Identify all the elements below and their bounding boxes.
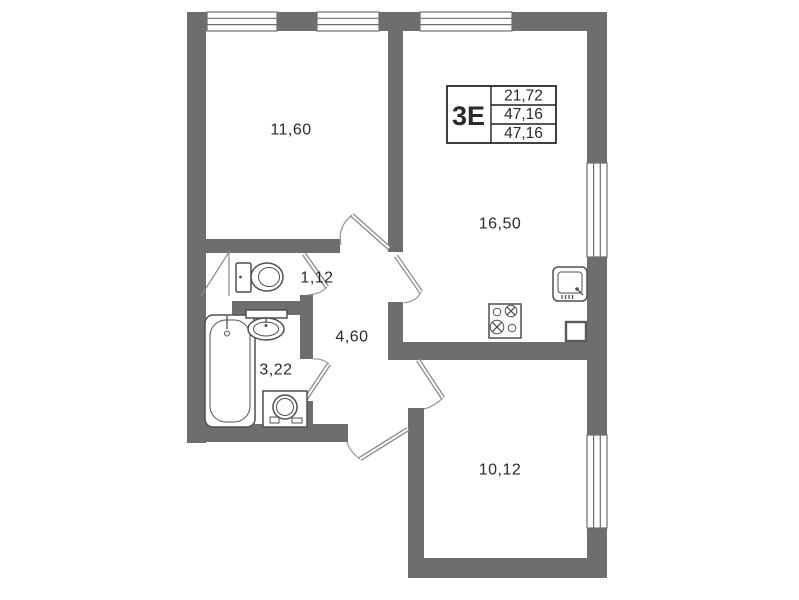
- wall-wc-top: [187, 239, 340, 253]
- kitchen-sink-icon: [553, 267, 587, 301]
- window-top-2: [317, 12, 379, 31]
- bathroom-sink-icon: [246, 310, 287, 340]
- kitchen-living-area-label: 16,50: [479, 216, 522, 233]
- room-a-area-label: 11,60: [270, 122, 311, 139]
- unit-info-stamp: 3Е 21,72 47,16 47,16: [447, 86, 556, 143]
- wc-area-label: 1,12: [300, 270, 333, 287]
- window-right-room-b: [587, 435, 607, 528]
- window-right-kitchen: [587, 163, 607, 257]
- stamp-value-living: 21,72: [504, 88, 543, 105]
- door-room-b: [418, 360, 443, 409]
- room-b-area-label: 10,12: [479, 462, 522, 479]
- floor-plan-canvas: 11,60 16,50 1,12 4,60 3,22 10,12 3Е 21,7…: [0, 0, 799, 600]
- wall-room-b-left: [408, 408, 424, 578]
- wall-left: [187, 12, 206, 443]
- stamp-value-total: 47,16: [504, 106, 543, 123]
- hall-area-label: 4,60: [335, 329, 368, 346]
- toilet-icon: [236, 263, 283, 292]
- unit-type-label: 3Е: [452, 101, 485, 131]
- bathroom-area-label: 3,22: [259, 362, 292, 379]
- wall-bottom-room-b: [408, 558, 607, 578]
- wall-middle-upper: [388, 12, 403, 252]
- stamp-value-total-reduced: 47,16: [504, 125, 543, 142]
- door-kitchen: [396, 256, 421, 303]
- stove-icon: [489, 304, 521, 338]
- vent-niche: [566, 322, 586, 341]
- door-entrance: [347, 429, 408, 459]
- window-top-1: [207, 12, 277, 31]
- washing-machine-icon: [263, 391, 307, 427]
- floor-plan: 11,60 16,50 1,12 4,60 3,22 10,12 3Е 21,7…: [0, 0, 799, 600]
- window-top-3: [420, 12, 512, 31]
- door-room-a: [340, 215, 389, 248]
- door-bathroom: [305, 359, 329, 400]
- bathtub-icon: [205, 315, 255, 427]
- wall-kitchen-bottom: [388, 342, 607, 360]
